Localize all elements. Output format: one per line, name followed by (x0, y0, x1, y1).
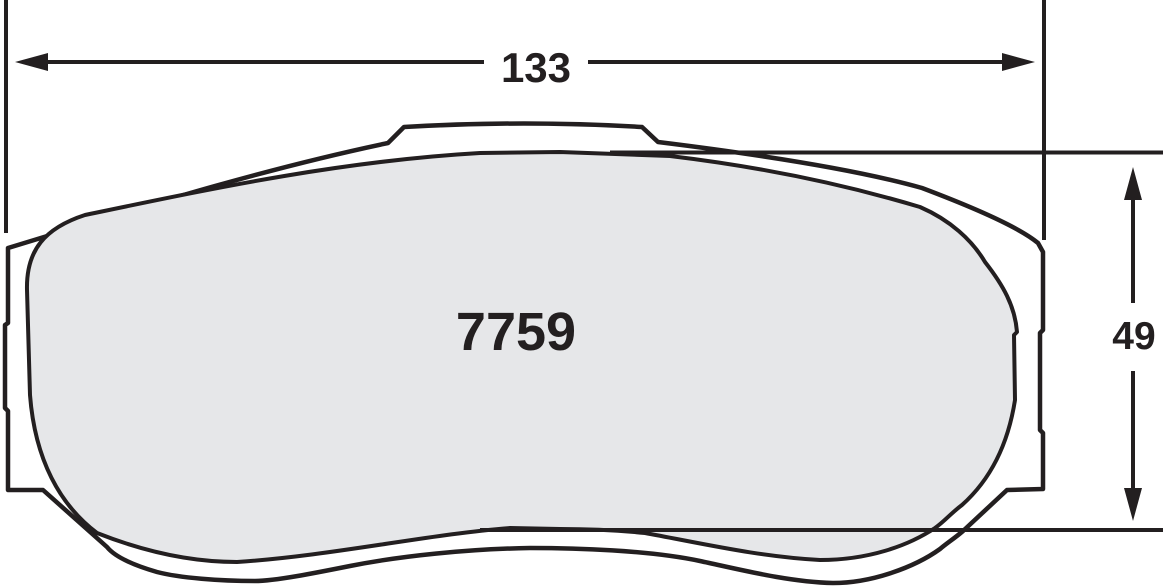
width-arrowhead-left-icon (15, 53, 48, 71)
height-dimension-label: 49 (1112, 315, 1155, 358)
part-number-label: 7759 (456, 302, 576, 362)
width-dimension-label: 133 (501, 44, 571, 91)
height-arrowhead-down-icon (1124, 488, 1142, 521)
width-arrowhead-right-icon (1002, 53, 1035, 71)
height-arrowhead-up-icon (1124, 167, 1142, 200)
brake-pad-technical-drawing: 133 49 7759 (0, 0, 1163, 587)
